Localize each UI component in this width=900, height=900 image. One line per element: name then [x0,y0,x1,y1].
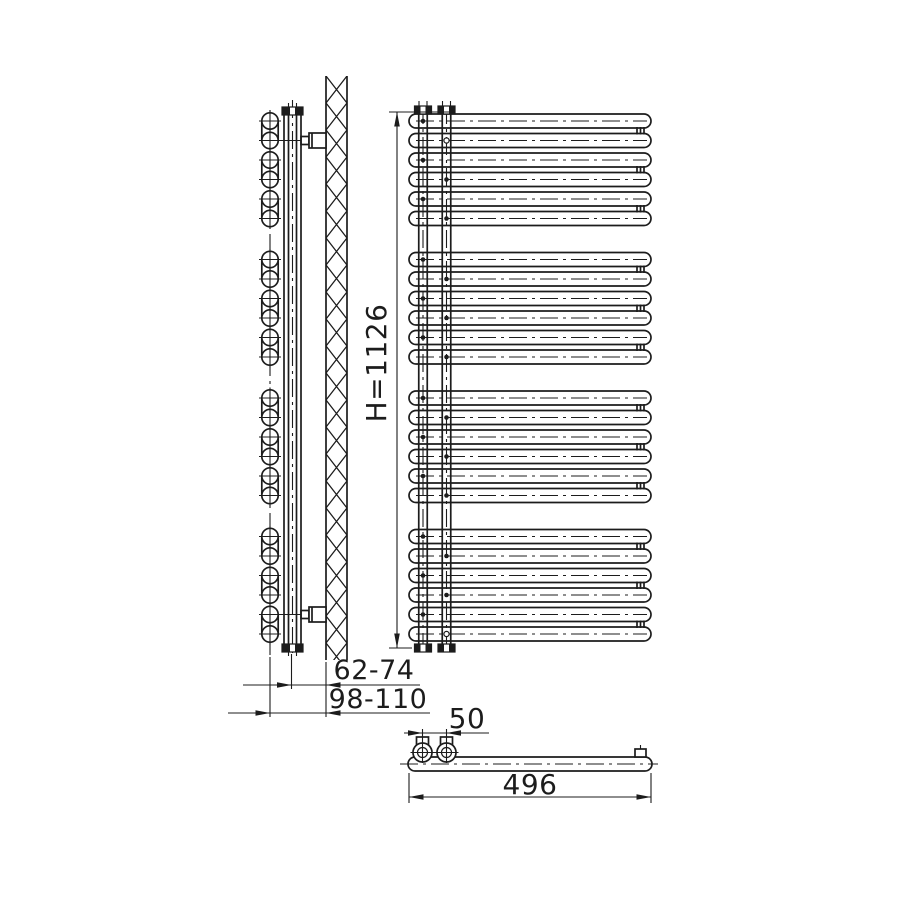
width-dimension-label: 496 [503,768,558,801]
wall-distance-max-label: 98-110 [329,684,428,715]
wall-distance-min-label: 62-74 [334,655,415,686]
radiator-tubes [409,114,651,641]
connection-spacing-label: 50 [449,702,486,735]
height-dimension-label: H=1126 [360,304,393,423]
wall-distance-dimensions: 62-74 98-110 [228,654,430,717]
radiator-technical-drawing: H=1126 50 496 62-74 98-110 [0,0,900,900]
technical-drawing-page: H=1126 50 496 62-74 98-110 [0,0,900,900]
tube-ends-side [259,111,281,645]
side-view [259,76,347,660]
wall-section [326,76,347,660]
bottom-view: 50 496 [400,702,658,803]
front-view: H=1126 [360,101,651,654]
